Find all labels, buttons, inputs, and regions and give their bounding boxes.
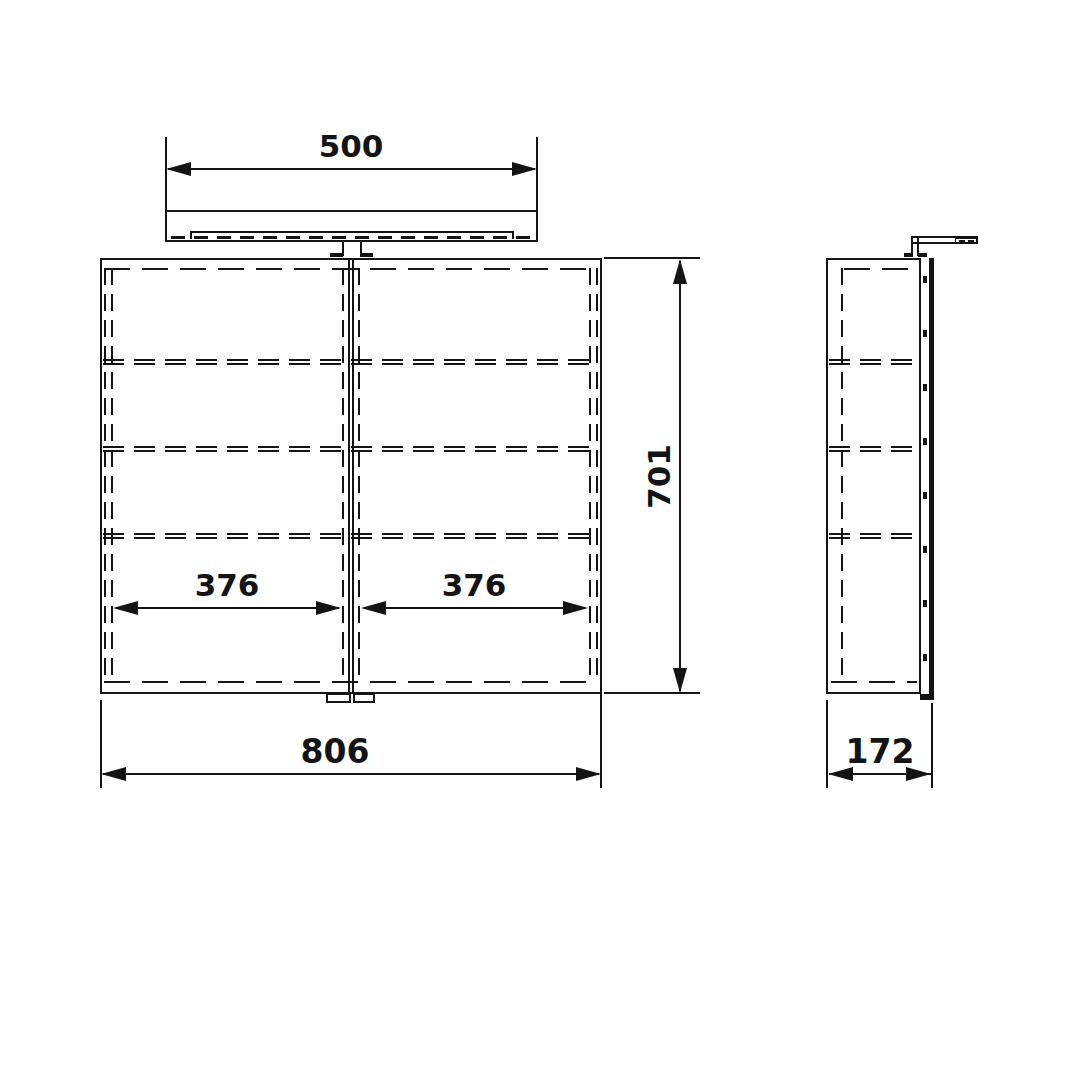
door-hidden-edge — [342, 268, 344, 684]
dim-label: 376 — [167, 570, 287, 601]
shelf-line — [829, 359, 918, 365]
hidden-bottom-edge — [831, 681, 917, 683]
arrowhead-left-icon — [361, 601, 386, 615]
shelf-line — [103, 533, 599, 539]
shelf-line — [103, 446, 599, 452]
door-hidden-edge — [358, 268, 360, 684]
cabinet-outline — [100, 258, 602, 694]
light-stem-foot — [330, 253, 343, 257]
dim-line — [116, 607, 339, 609]
dim-line — [103, 773, 599, 775]
shelf-line — [829, 533, 918, 539]
dim-label: 172 — [820, 735, 940, 768]
light-diffuser-dashes — [171, 236, 533, 239]
back-panel-hidden-line — [841, 268, 843, 684]
hidden-top-edge — [104, 268, 598, 270]
door-hidden-edge — [111, 268, 113, 684]
light-head-dash — [959, 240, 965, 242]
shelf-line — [103, 359, 599, 365]
arrowhead-left-icon — [101, 767, 126, 781]
door-gap-line — [352, 258, 354, 694]
dim-line — [168, 168, 535, 170]
arrowhead-left-icon — [113, 601, 138, 615]
door-bottom-mark — [920, 694, 934, 700]
hidden-bottom-edge — [104, 681, 598, 683]
hidden-top-edge — [844, 268, 917, 270]
dim-line — [364, 607, 585, 609]
light-post-foot — [904, 253, 913, 257]
door-gap-line — [348, 258, 350, 694]
handle-left — [326, 693, 351, 703]
dim-label: 701 — [644, 417, 675, 537]
light-head-dash — [968, 240, 974, 242]
arrowhead-right-icon — [512, 162, 537, 176]
arrowhead-left-icon — [166, 162, 191, 176]
light-stem-foot — [360, 253, 373, 257]
door-fitting-ticks — [923, 276, 927, 688]
door-hidden-edge — [596, 268, 598, 684]
arrowhead-right-icon — [576, 767, 601, 781]
technical-drawing: 500 701 376 376 806 172 — [0, 0, 1080, 1080]
arrowhead-up-icon — [673, 259, 687, 284]
door-hidden-edge — [589, 268, 591, 684]
light-post-foot — [918, 253, 927, 257]
arrowhead-down-icon — [673, 668, 687, 693]
light-bar-inner-line — [190, 231, 514, 233]
mirror-door-front-line — [929, 258, 934, 700]
dim-label: 376 — [414, 570, 534, 601]
handle-right — [353, 693, 375, 703]
arrowhead-right-icon — [563, 601, 588, 615]
dim-line — [679, 261, 681, 691]
shelf-line — [829, 446, 918, 452]
dim-label: 806 — [275, 735, 395, 768]
dim-label: 500 — [291, 131, 411, 162]
door-hidden-edge — [104, 268, 106, 684]
arrowhead-right-icon — [316, 601, 341, 615]
